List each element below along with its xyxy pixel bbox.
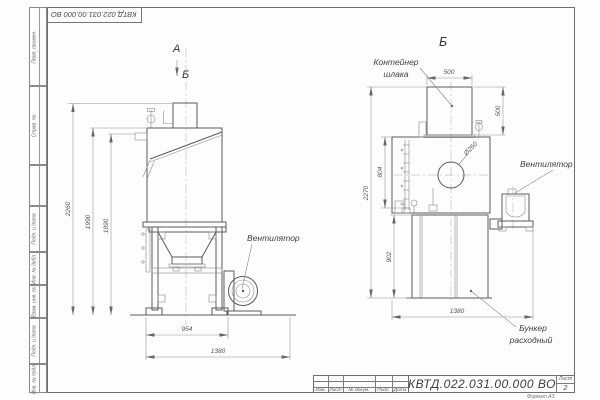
stamp-label: Инв. № подл. [32,363,38,394]
tb-designation: КВТД.022.031.00.000 ВО [408,375,556,393]
stamp-label: Инв. № дубл. [32,253,38,284]
tb-sheet-number: 2 [556,383,575,393]
stamp-inv-podl: Инв. № подл. [29,364,47,393]
tb-col-podp: Подп. [375,387,392,393]
stamp-sprav-no: Справ. № [29,86,47,165]
corner-designation: КВТД.022.031.00.000 ВО [51,10,137,19]
sheet-frame [47,7,575,393]
stamp-label: Справ. № [32,114,38,137]
stamp-label: Перв. примен. [32,30,38,63]
stamp-label: Взам. инв. № [32,286,38,317]
tb-row-line [313,381,408,382]
tb-col-docnum: № докум. [343,387,375,393]
tb-col-list: Лист [328,387,343,393]
stamp-perv-primen: Перв. примен. [29,7,47,86]
stamp-podp-data-1: Подп. и дата [29,206,47,252]
tb-sheet-label: Лист [556,375,575,383]
stamp-label: Подп. и дата [32,213,38,244]
stamp-empty [29,165,47,206]
stamp-inv-dubl: Инв. № дубл. [29,252,47,285]
corner-designation-box: КВТД.022.031.00.000 ВО [47,7,142,23]
stamp-podp-data-2: Подп. и дата [29,318,47,364]
tb-col-data: Дата [392,387,408,393]
tb-col-izm: Изм. [313,387,328,393]
drawing-sheet: А Б [0,0,600,400]
stamp-label: Подп. и дата [32,325,38,356]
format-note: Формат А3 [527,394,554,400]
stamp-vzam-inv: Взам. инв. № [29,285,47,318]
